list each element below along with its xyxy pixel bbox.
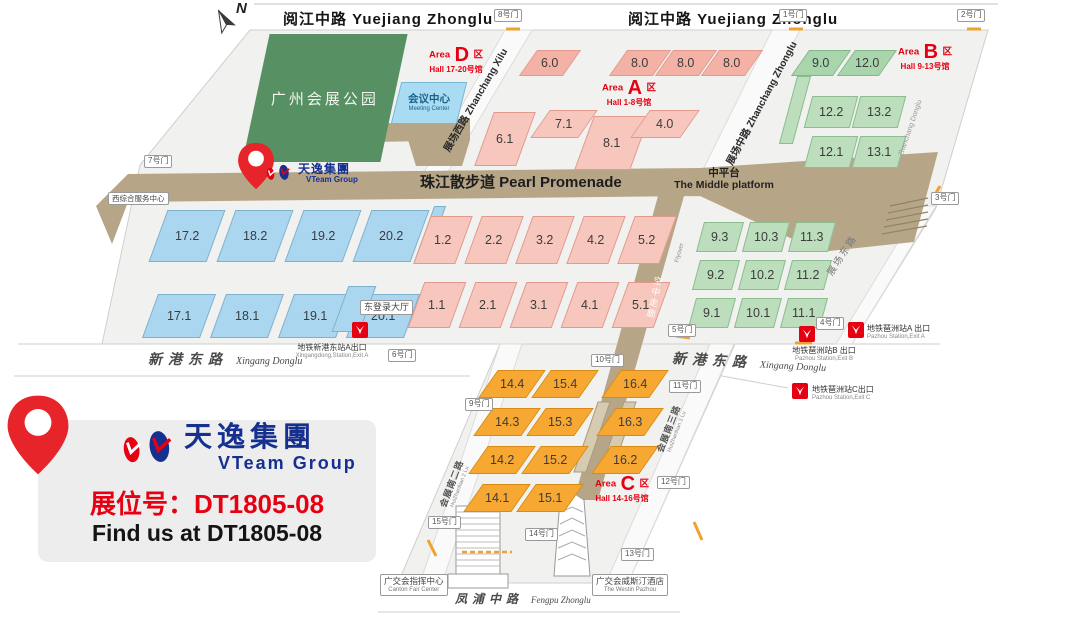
promo-logo-cn: 天逸集團 — [184, 424, 357, 452]
canton-fair-complex-map: N 阅江中路 Yuejiang Zhonglu 阅江中路 Yuejiang Zh… — [0, 0, 1080, 627]
hall-11-2: 11.2 — [784, 260, 832, 290]
hall-13-2: 13.2 — [852, 96, 907, 128]
vteam-logo-marks-icon — [264, 162, 294, 184]
gate-4: 4号门 — [816, 317, 844, 330]
westin-hotel-callout: 广交会威斯汀酒店 The Westin Pazhou — [592, 574, 668, 596]
hall-12-2: 12.2 — [804, 96, 859, 128]
metro-xingangdong-exit-a: 地铁新港东站A出口 Xingangdong,Station,Exit A — [290, 343, 374, 360]
map-logo-cn: 天逸集團 — [298, 163, 358, 175]
road-xingang-donglu-left: 新港东路 Xingang Donglu — [148, 349, 302, 369]
gate-11: 11号门 — [669, 380, 701, 393]
hall-9-3: 9.3 — [696, 222, 744, 252]
promo-logo-en: VTeam Group — [218, 454, 357, 472]
booth-number-cn: 展位号：DT1805-08 — [44, 484, 370, 521]
area-a-label: Area A 区 Hall 1-8号馆 — [590, 78, 668, 107]
area-d-label: Area D 区 Hall 17-20号馆 — [420, 45, 492, 74]
gate-8: 8号门 — [494, 9, 522, 22]
gate-1: 1号门 — [779, 9, 807, 22]
east-registration-hall-callout: 东登录大厅 — [360, 300, 413, 315]
hall-10-1: 10.1 — [734, 298, 782, 328]
gate-15: 15号门 — [428, 516, 461, 529]
gate-10: 10号门 — [591, 354, 624, 367]
hall-10-3: 10.3 — [742, 222, 790, 252]
gate-5: 5号门 — [668, 324, 696, 337]
gate-2: 2号门 — [957, 9, 985, 22]
gate-9: 9号门 — [465, 398, 493, 411]
metro-icon — [848, 322, 864, 338]
park-label: 广州会展公园 — [271, 88, 379, 109]
gate-12: 12号门 — [657, 476, 690, 489]
meeting-center-en: Meeting Center — [408, 105, 450, 112]
booth-number-en: Find us at DT1805-08 — [44, 520, 370, 547]
metro-icon — [792, 383, 808, 399]
promo-vteam-logo: 天逸集團 VTeam Group — [118, 424, 357, 472]
road-fengpu-zhonglu: 凤浦中路 Fengpu Zhonglu — [455, 590, 591, 607]
map-logo-en: VTeam Group — [306, 176, 358, 184]
gate-14: 14号门 — [525, 528, 558, 541]
gate-3: 3号门 — [931, 192, 959, 205]
area-c-label: Area C 区 Hall 14-16号馆 — [578, 474, 666, 503]
road-pearl-promenade: 珠江散步道 Pearl Promenade — [420, 171, 622, 192]
metro-icon — [799, 326, 815, 342]
gate-6: 6号门 — [388, 349, 416, 362]
meeting-center-cn: 会议中心 — [408, 94, 450, 106]
hall-9-2: 9.2 — [692, 260, 740, 290]
canton-fair-center-callout: 广交会指挥中心 Canton Fair Center — [380, 574, 448, 596]
area-b-label: Area B 区 Hall 9-13号馆 — [888, 42, 962, 71]
metro-icon — [352, 322, 368, 338]
west-service-center-callout: 西综合服务中心 — [108, 192, 169, 205]
metro-pazhou-exit-a: 地铁琶洲站A 出口 Pazhou Station,Exit A — [867, 324, 930, 341]
hall-10-2: 10.2 — [738, 260, 786, 290]
vteam-logo-marks-icon — [118, 426, 180, 470]
hall-11-3: 11.3 — [788, 222, 836, 252]
gate-7: 7号门 — [144, 155, 172, 168]
compass-north-label: N — [236, 0, 247, 17]
gate-13: 13号门 — [621, 548, 654, 561]
metro-pazhou-exit-b: 地铁琶洲站B 出口 Pazhou Station,Exit B — [776, 346, 872, 363]
road-yuejiang-zhonglu-left: 阅江中路 Yuejiang Zhonglu — [283, 8, 493, 29]
promo-location-pin-icon — [4, 392, 72, 478]
road-middle-platform: 中平台 The Middle platform — [666, 167, 782, 191]
map-vteam-logo: 天逸集團 VTeam Group — [264, 162, 358, 184]
hall-12-1: 12.1 — [804, 136, 859, 168]
metro-pazhou-exit-c: 地铁琶洲站C出口 Pazhou Station,Exit C — [812, 385, 874, 402]
